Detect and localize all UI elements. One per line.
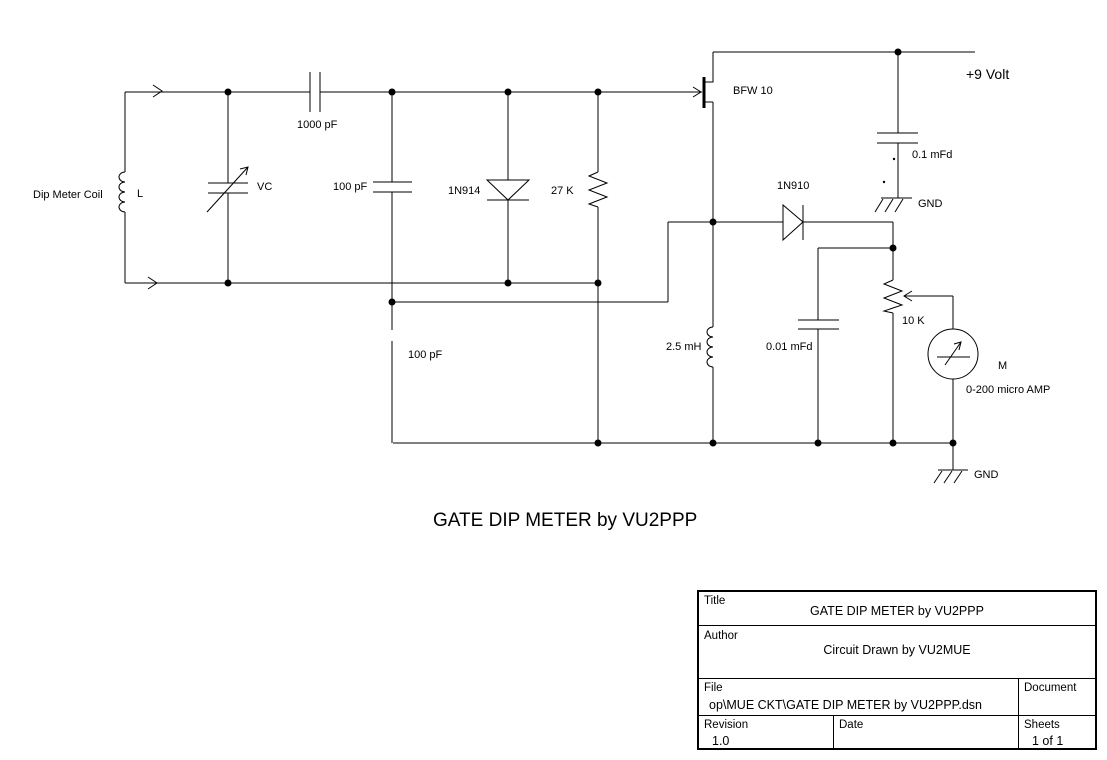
resistor-zigzag (884, 280, 902, 313)
title-block-divider (833, 715, 834, 748)
date-label: Date (839, 719, 863, 731)
junction-dot (225, 89, 232, 96)
label-gnd-bottom: GND (974, 469, 998, 482)
schematic-caption: GATE DIP METER by VU2PPP (433, 510, 697, 532)
diode-1N914 (487, 180, 529, 200)
capacitor-1000pF (310, 72, 320, 112)
flow-arrows (148, 85, 162, 289)
revision-value: 1.0 (712, 734, 729, 748)
junction-dot (890, 440, 897, 447)
stray-dot (893, 158, 895, 160)
resistor-27K (589, 172, 607, 207)
title-block-divider (699, 715, 1095, 716)
stray-dot (883, 181, 885, 183)
label-1n910: 1N910 (777, 180, 809, 193)
junction-dot (815, 440, 822, 447)
label-meter: M (998, 360, 1007, 373)
page: { "schematic": { "caption": "GATE DIP ME… (0, 0, 1107, 760)
revision-label: Revision (704, 719, 748, 731)
diode-1N910 (783, 205, 803, 240)
label-100pf-top: 100 pF (333, 181, 367, 194)
arrow-top-wire (153, 85, 162, 97)
author-value: Circuit Drawn by VU2MUE (699, 643, 1095, 657)
gnd-hatch (875, 199, 883, 212)
title-block-divider (699, 625, 1095, 626)
label-25mh: 2.5 mH (666, 341, 701, 354)
junction-dot (389, 89, 396, 96)
junction-dot (225, 280, 232, 287)
label-100pf-bottom: 100 pF (408, 349, 442, 362)
resistor-zigzag (589, 172, 607, 207)
label-27k: 27 K (551, 185, 574, 198)
diode-triangle (487, 180, 529, 200)
label-meter-range: 0-200 micro AMP (966, 384, 1050, 397)
label-01mfd: 0.1 mFd (912, 149, 952, 162)
junction-dot (895, 49, 902, 56)
ground-symbol-top (875, 198, 912, 212)
fet-drain-lead (705, 52, 713, 82)
coil-symbol (707, 327, 713, 367)
gnd-hatch (885, 199, 893, 212)
label-dip-meter-coil: Dip Meter Coil (33, 189, 103, 202)
file-label: File (704, 682, 723, 694)
title-block-divider (1018, 678, 1019, 748)
diode-triangle (783, 205, 803, 240)
junction-dot (710, 440, 717, 447)
inductor-L-coil (119, 172, 125, 212)
gnd-hatch (954, 471, 962, 483)
title-value: GATE DIP METER by VU2PPP (699, 604, 1095, 618)
file-value: op\MUE CKT\GATE DIP METER by VU2PPP.dsn (709, 698, 982, 712)
sheets-label: Sheets (1024, 719, 1060, 731)
label-1000pf: 1000 pF (297, 119, 337, 132)
label-9volt: +9 Volt (966, 66, 1009, 82)
capacitor-0.1mFd (877, 133, 918, 143)
gnd-hatch (944, 471, 952, 483)
title-block-divider (699, 678, 1095, 679)
junction-dot (890, 245, 897, 252)
junction-dot (595, 440, 602, 447)
label-vc: VC (257, 181, 272, 194)
document-label: Document (1024, 682, 1076, 694)
coil-symbol (119, 172, 125, 212)
ground-symbol-bottom (934, 470, 968, 483)
label-inductor-L: L (137, 188, 143, 201)
wires (125, 52, 975, 470)
label-gnd-top: GND (918, 198, 942, 211)
meter-M (928, 329, 978, 379)
label-1n914: 1N914 (448, 185, 480, 198)
junction-dot (950, 440, 957, 447)
capacitor-100pF-top (373, 182, 412, 192)
jfet-BFW10 (693, 52, 713, 108)
title-block: Title GATE DIP METER by VU2PPP Author Ci… (697, 590, 1097, 750)
inductor-2.5mH (707, 327, 713, 367)
label-001mfd: 0.01 mFd (766, 341, 812, 354)
junction-dot (505, 89, 512, 96)
sheets-value: 1 of 1 (1032, 734, 1063, 748)
capacitor-0.01mFd (798, 320, 839, 329)
junction-dot (505, 280, 512, 287)
gnd-hatch (895, 199, 903, 212)
junction-dot (389, 299, 396, 306)
label-10k: 10 K (902, 315, 925, 328)
junction-dot (595, 280, 602, 287)
schematic-canvas: Dip Meter Coil L VC 1000 pF 100 pF 1N914… (0, 0, 1107, 760)
junction-dot (710, 219, 717, 226)
gnd-hatch (934, 471, 942, 483)
label-bfw10: BFW 10 (733, 85, 773, 98)
author-label: Author (704, 630, 738, 642)
junction-dot (595, 89, 602, 96)
